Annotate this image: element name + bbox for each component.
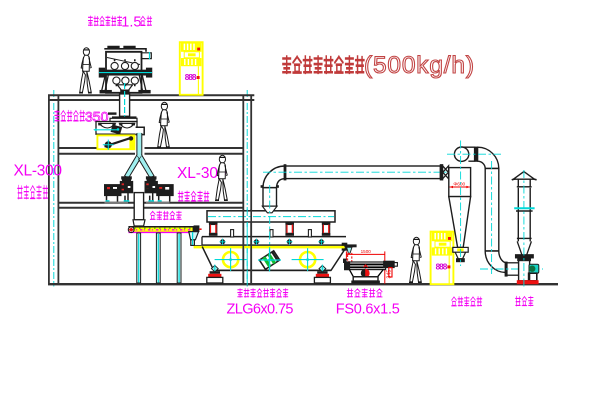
svg-text:XL-300: XL-300 [14,162,63,179]
svg-text:(500kg/h): (500kg/h) [364,52,474,79]
svg-text:888: 888 [185,73,197,82]
svg-text:ZLG6x0.75: ZLG6x0.75 [227,302,294,318]
svg-text:Φ600: Φ600 [453,182,465,188]
svg-text:1500: 1500 [361,249,372,254]
svg-text:1.5: 1.5 [121,14,141,30]
svg-text:888: 888 [436,262,448,271]
svg-text:FS0.6x1.5: FS0.6x1.5 [336,302,400,318]
